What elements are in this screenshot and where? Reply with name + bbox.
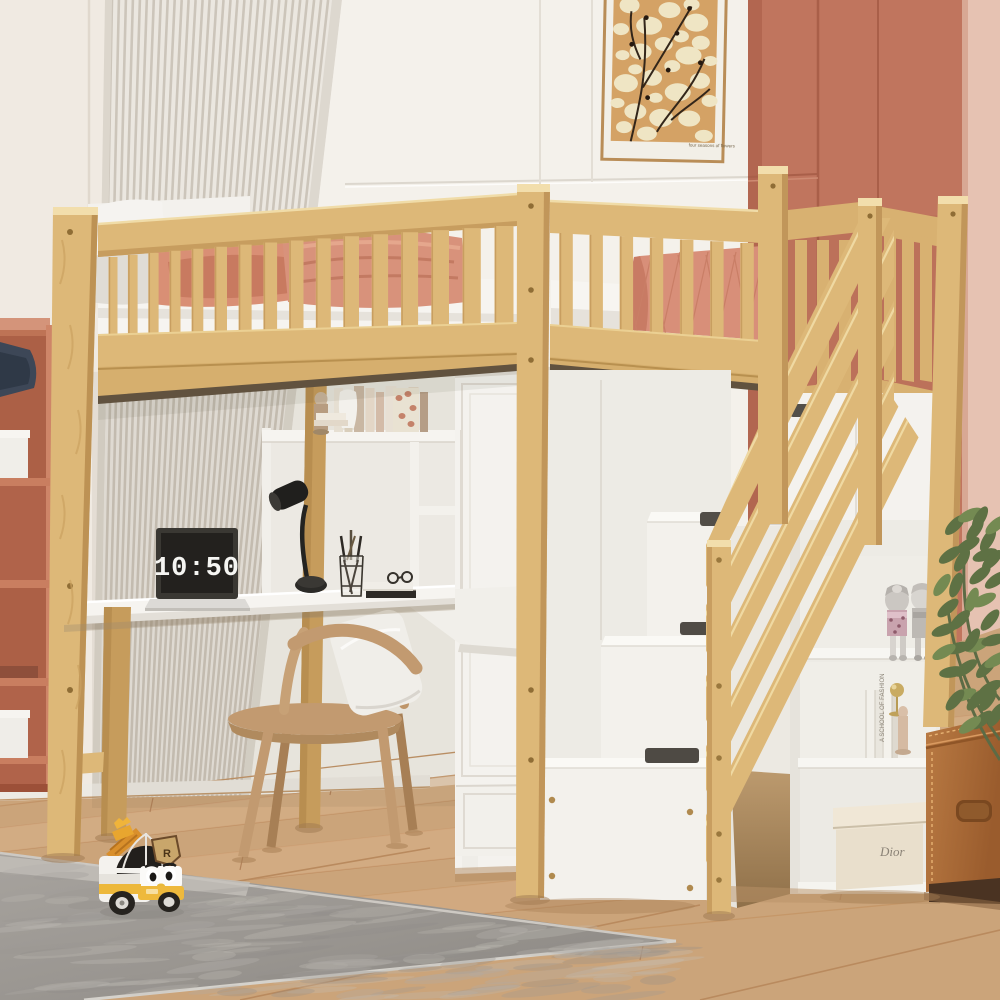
svg-text:four seasons of flowers: four seasons of flowers xyxy=(689,143,736,149)
svg-text:A SCHOOL OF FASHION: A SCHOOL OF FASHION xyxy=(880,674,886,742)
svg-text:10:50: 10:50 xyxy=(154,554,240,584)
svg-text:R: R xyxy=(163,848,171,860)
svg-text:Dior: Dior xyxy=(879,844,906,859)
